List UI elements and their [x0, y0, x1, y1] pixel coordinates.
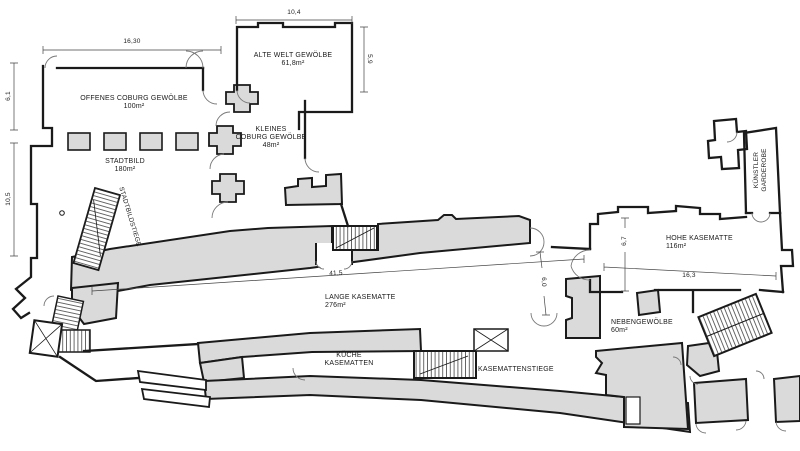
room-name: ALTE WELT GEWÖLBE: [254, 52, 332, 59]
corridor-band: [71, 215, 530, 297]
room-label-kleines: KLEINES COBURG GEWÖLBE 48m²: [236, 126, 307, 150]
stairs-corridor-top-icon: [333, 226, 377, 250]
room-area: 100m²: [124, 103, 145, 110]
stairs-kasemattenstiege-icon: [414, 351, 476, 378]
room-name: GARDEROBE: [761, 148, 768, 191]
room-area: 276m²: [325, 302, 346, 309]
room-label-kueche-kasematten: KÜCHE KASEMATTEN: [325, 352, 374, 368]
room-name: OFFENES COBURG GEWÖLBE: [80, 95, 187, 102]
stairs-label-kasemattenstiege: KASEMATTENSTIEGE: [478, 366, 554, 374]
dim-left-lower-height: 10,5: [5, 192, 13, 205]
room-label-lange-kasematte: LANGE KASEMATTE 276m²: [325, 294, 396, 310]
dim-corridor-width: 6,0: [539, 277, 547, 287]
room-area: 61,8m²: [281, 60, 304, 67]
dim-alte-welt-height: 5,9: [365, 54, 373, 64]
room-label-nebengewoelbe: NEBENGEWÖLBE 60m²: [611, 319, 673, 335]
floor-plan: 16,30 10,4 5,9 6,1 10,5 41,5 6,7 16,3 6,…: [0, 0, 800, 451]
square-pillar: [637, 290, 660, 315]
dim-alte-welt-width: 10,4: [287, 9, 300, 17]
room-label-alte-welt: ALTE WELT GEWÖLBE 61,8m²: [254, 52, 332, 68]
room-label-kuenstler-garderobe: KÜNSTLER GARDEROBE: [753, 148, 769, 191]
room-area: 60m²: [611, 327, 628, 334]
stairs-right-tilted-icon: [698, 294, 771, 356]
left-white-wedge-1: [138, 371, 206, 390]
room-label-hohe-kasematte: HOHE KASEMATTE 116m²: [666, 235, 733, 251]
floorplan-drawing: [0, 0, 800, 451]
room-name: KLEINES: [256, 126, 287, 133]
room-label-offenes: OFFENES COBURG GEWÖLBE 100m²: [80, 95, 187, 111]
room-name: KÜNSTLER: [753, 152, 760, 188]
room-area: 116m²: [666, 243, 686, 250]
pillar-row: [68, 133, 198, 150]
walls: [13, 23, 793, 381]
dim-offenes-width: 16,30: [123, 38, 140, 46]
left-white-wedge-2: [142, 389, 210, 407]
room-name: STADTBILD: [105, 158, 145, 165]
room-name: LANGE KASEMATTE: [325, 294, 396, 301]
room-name: KÜCHE: [336, 352, 362, 359]
dim-left-upper-height: 6,1: [5, 91, 13, 101]
room-area: 180m²: [115, 166, 136, 173]
room-name: KASEMATTEN: [325, 360, 374, 367]
dim-lange-length: 41,5: [329, 270, 343, 279]
dim-hohe-height: 6,7: [621, 236, 629, 246]
room-name: HOHE KASEMATTE: [666, 235, 733, 242]
elevator-icon: [30, 320, 62, 357]
kleines-corner-gray: [285, 174, 342, 205]
gray-block-corridor-end: [566, 276, 600, 338]
crossed-box-icon: [474, 329, 508, 351]
room-name: COBURG GEWÖLBE: [236, 134, 307, 141]
right-quad-2: [774, 376, 800, 422]
room-area: 48m²: [263, 142, 280, 149]
room-label-stadtbild: STADTBILD 180m²: [105, 158, 145, 174]
dim-hohe-width: 16,3: [682, 272, 695, 280]
room-name: NEBENGEWÖLBE: [611, 319, 673, 326]
right-quad-1: [694, 379, 748, 423]
